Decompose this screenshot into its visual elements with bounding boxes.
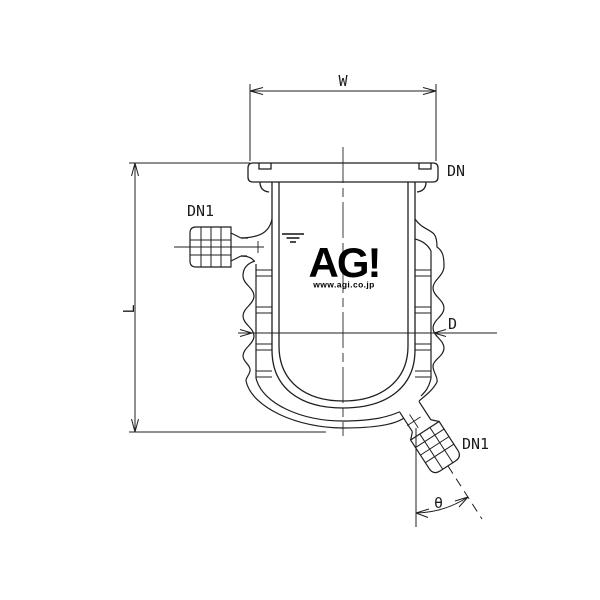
angle-axis-dashed-line <box>448 466 482 519</box>
jacketed-vessel-drawing: W L D DN <box>0 0 600 600</box>
diameter-label: D <box>448 315 457 333</box>
bottom-port-taper <box>407 416 439 440</box>
flange-size-label: DN <box>447 162 465 180</box>
length-extension-lines <box>129 163 326 432</box>
bottom-drain-port <box>394 396 462 475</box>
diameter-dimension <box>238 330 497 337</box>
flange-groove-notches <box>259 164 431 170</box>
bottom-port-tube <box>399 400 431 432</box>
length-label: L <box>120 304 138 313</box>
jacket-baffle-rungs-right <box>415 270 431 377</box>
brand-logo-url: www.agi.co.jp <box>312 280 375 290</box>
bottom-port-flange-outline <box>411 422 462 476</box>
jacket-baffle-rungs-left <box>256 270 272 377</box>
side-port-size-label: DN1 <box>187 202 214 220</box>
length-dimension <box>129 163 326 432</box>
angle-label: θ <box>434 494 443 512</box>
side-port-lower-fillet <box>241 256 254 261</box>
jacket-right-inner-wall <box>415 239 431 396</box>
technical-drawing-page: W L D DN <box>0 0 600 600</box>
jacket-right-outer-wavy-wall <box>415 219 444 401</box>
side-port-upper-fillet <box>241 219 272 238</box>
side-jacket-port <box>174 219 272 267</box>
width-label: W <box>338 72 348 90</box>
liquid-level-icon <box>282 234 304 242</box>
bottom-port-size-label: DN1 <box>462 435 489 453</box>
